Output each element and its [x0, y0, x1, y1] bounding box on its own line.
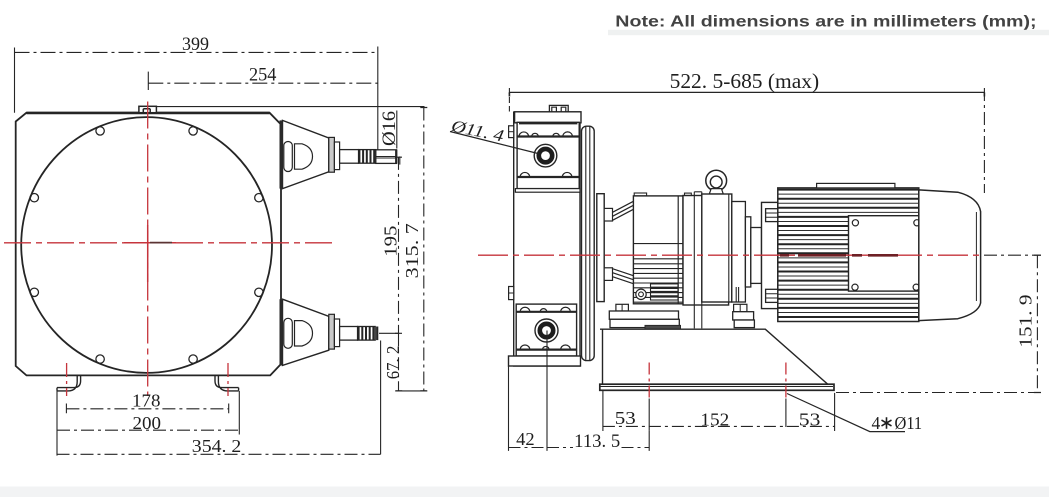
svg-text:53: 53	[799, 410, 821, 430]
svg-text:178: 178	[132, 391, 161, 411]
svg-text:4: 4	[872, 413, 881, 433]
svg-text:399: 399	[182, 35, 209, 55]
svg-text:113. 5: 113. 5	[574, 432, 620, 452]
svg-text:Ø11: Ø11	[895, 413, 923, 433]
svg-text:195: 195	[380, 226, 400, 257]
svg-text:315. 7: 315. 7	[402, 223, 422, 278]
svg-text:522. 5-685 (max): 522. 5-685 (max)	[670, 69, 820, 93]
svg-text:67. 2: 67. 2	[383, 346, 403, 380]
svg-text:354. 2: 354. 2	[192, 436, 242, 456]
svg-text:152: 152	[700, 410, 729, 430]
svg-text:53: 53	[615, 408, 636, 428]
svg-text:Ø16: Ø16	[379, 111, 400, 146]
svg-text:42: 42	[516, 429, 535, 449]
svg-text:200: 200	[133, 413, 162, 433]
svg-text:Note: All dimensions are in mi: Note: All dimensions are in millimeters …	[615, 13, 1036, 30]
svg-text:254: 254	[249, 66, 276, 86]
svg-text:151. 9: 151. 9	[1016, 295, 1036, 348]
